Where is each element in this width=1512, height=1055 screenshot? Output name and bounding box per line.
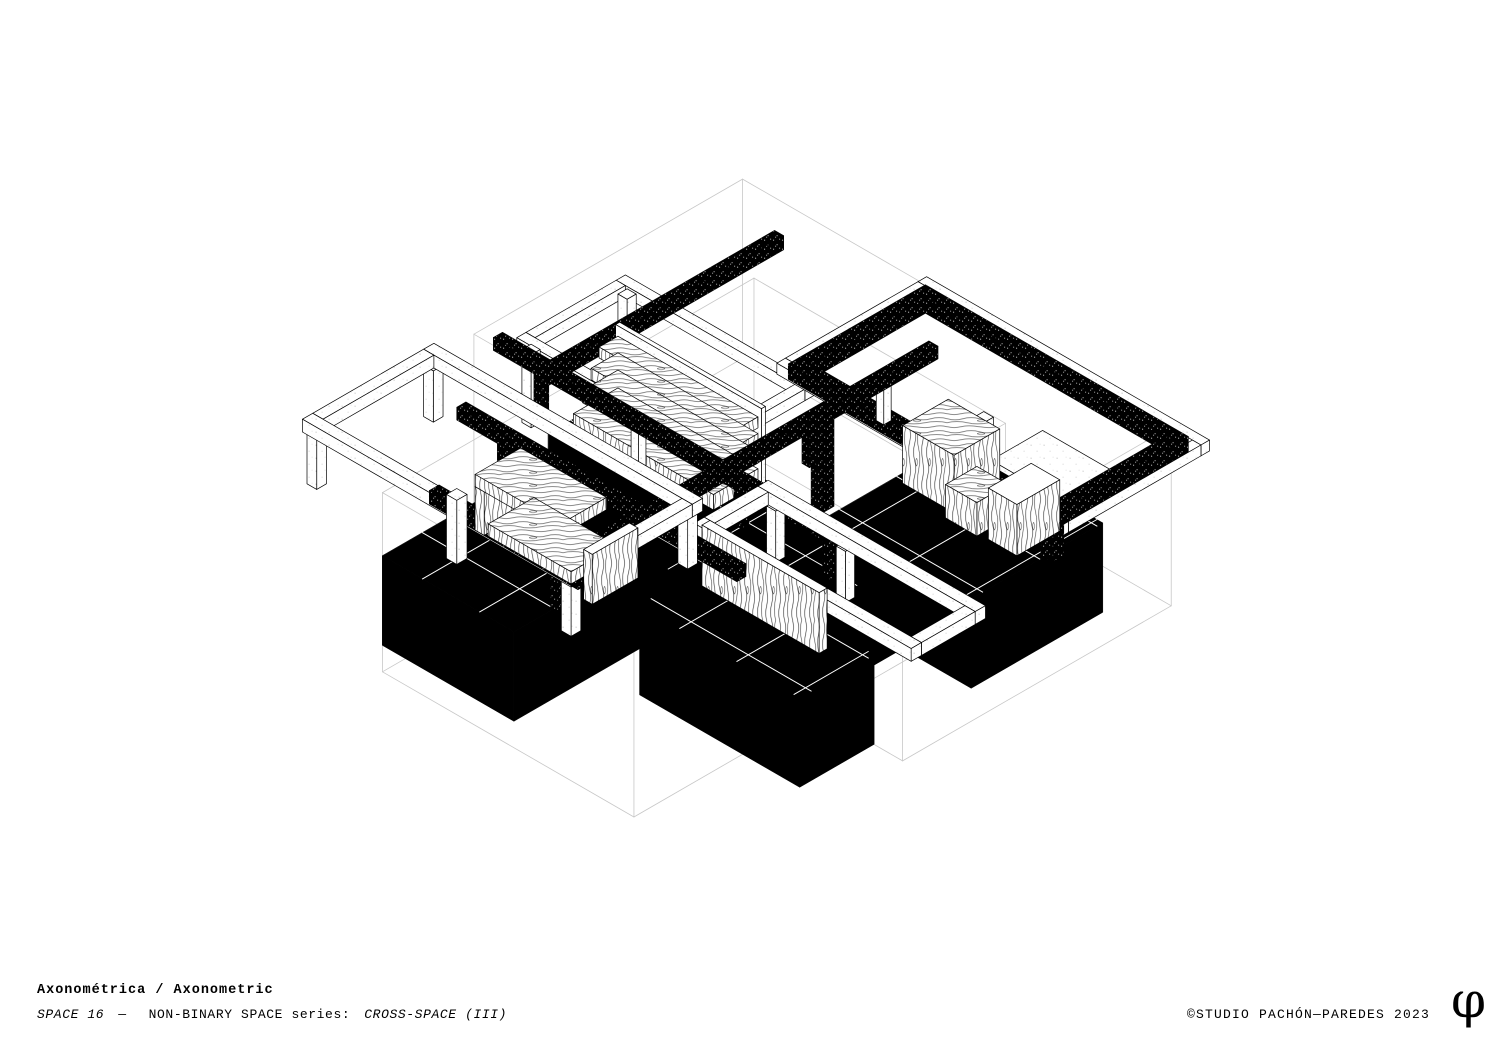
frame-stippled-upper-right	[800, 291, 926, 364]
beam-column-stippled	[809, 428, 816, 468]
copyright-text: ©STUDIO PACHÓN—PAREDES 2023	[1187, 1007, 1430, 1022]
envelope-volume-a	[474, 179, 743, 334]
series-code: SPACE 16	[37, 1007, 104, 1022]
drawing-subtitle: SPACE 16—NON-BINARY SPACE series:CROSS-S…	[37, 1007, 507, 1022]
frame-column-white	[433, 365, 443, 422]
subtitle-dash: —	[118, 1007, 126, 1022]
series-name: NON-BINARY SPACE series:	[149, 1007, 351, 1022]
bench-front-column-white	[457, 494, 467, 564]
drawing-name: CROSS-SPACE (III)	[364, 1007, 507, 1022]
drawing-title: Axonométrica / Axonometric	[37, 983, 507, 998]
bench-right-panel	[584, 549, 593, 604]
frame-white-left	[323, 355, 434, 432]
beam-column-stippled	[823, 540, 830, 580]
frame-column-white	[561, 580, 571, 637]
drawing-sheet: Axonométrica / Axonometric SPACE 16—NON-…	[0, 0, 1512, 1055]
axonometric-drawing	[0, 0, 1512, 1055]
frame-column-white	[688, 512, 698, 569]
caption-block: Axonométrica / Axonometric SPACE 16—NON-…	[37, 983, 507, 1022]
beam-column-white	[884, 385, 891, 425]
bench-left-panel	[475, 487, 484, 536]
bench-front-column-white	[446, 494, 456, 564]
frame-column-white	[845, 546, 854, 602]
frame-column-white	[776, 506, 785, 562]
column-stippled-center	[823, 417, 834, 513]
frame-white-left	[313, 349, 434, 419]
frame-column-white	[307, 433, 317, 490]
wood-wall-panel	[819, 588, 827, 653]
studio-logo-phi-icon: φ	[1451, 975, 1486, 1025]
frame-column-white	[424, 365, 434, 422]
